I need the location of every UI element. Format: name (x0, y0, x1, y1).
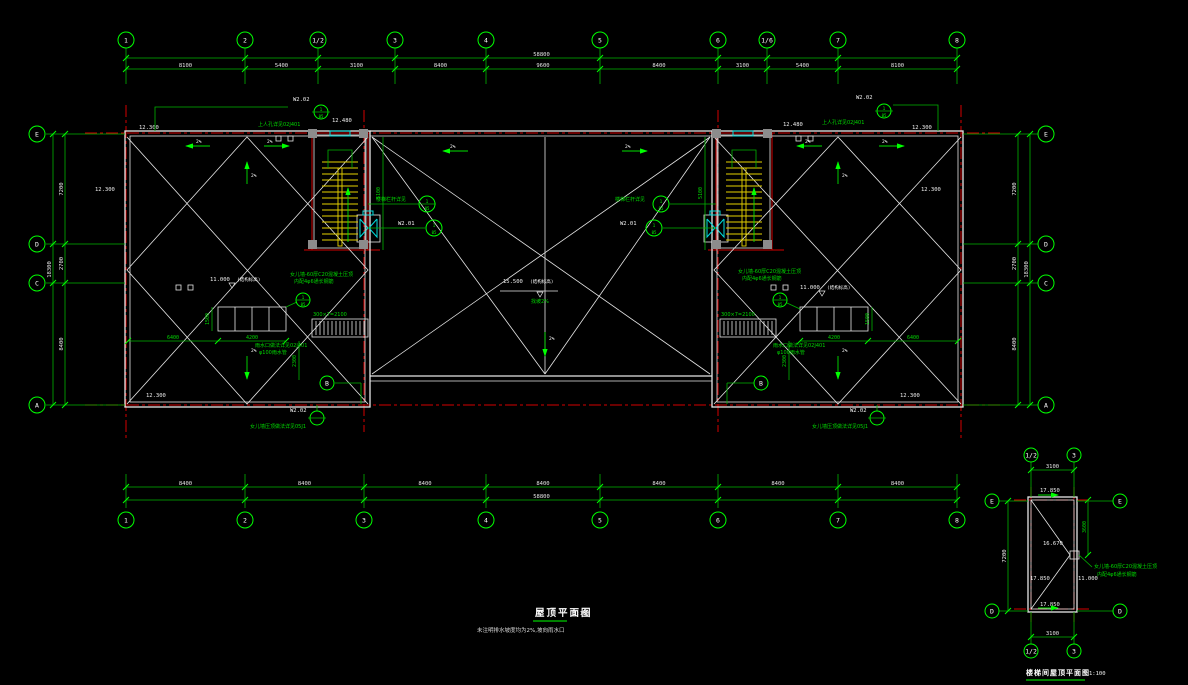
dimension-text: 18300 (1024, 261, 1030, 278)
dimension-text: 8400 (418, 481, 431, 487)
level-label: 12.300 (146, 393, 166, 399)
grid-bubble-label: 1/2 (1025, 647, 1037, 655)
level-label: 12.480 (332, 118, 352, 124)
level-label: 12.300 (921, 187, 941, 193)
slope-label: 2% (549, 336, 555, 342)
dimension-text: 8400 (652, 63, 665, 69)
detail-ref: W2.02 (290, 408, 307, 414)
detail-sheet: 05 (778, 302, 783, 307)
detail-number: 1 (883, 106, 886, 111)
grid-bubble-label: 3 (362, 516, 366, 524)
annotation-text: 上人孔详见02J401 (258, 121, 300, 128)
detail-number: 1 (302, 295, 305, 300)
dimension-text: 1500 (205, 313, 211, 325)
dimension-text: 8400 (298, 481, 311, 487)
grid-chain-top: 121/234561/67858800810054003100840096008… (118, 32, 965, 84)
title-block: 屋顶平面图 1:100 未注明排水坡度均为2%,坡向雨水口 (477, 608, 593, 634)
level-symbol-icon (819, 291, 825, 296)
grid-bubble-label: 1 (124, 36, 128, 44)
cad-viewport: 6400 4200 4200 6400 1500 1500 2300 2300 … (0, 0, 1188, 685)
grid-bubble-label: 6 (716, 516, 720, 524)
grid-chain-bottom: 1234567858800840084008400840084008400840… (118, 474, 965, 528)
grid-bubble-label: 5 (598, 36, 602, 44)
detail-sheet: 05 (432, 230, 437, 235)
slope-label: 2% (842, 348, 848, 354)
level-label: 11.000 (1078, 576, 1098, 582)
dimension-text: 8400 (771, 481, 784, 487)
dimension-text: 8400 (179, 481, 192, 487)
annotation-text: 雨水口做法详见02J401 (255, 342, 307, 349)
level-label: 12.480 (783, 122, 803, 128)
left-wing-ridges (127, 137, 368, 404)
grid-bubble-label: 7 (836, 36, 840, 44)
level-note: (结构标高) (530, 278, 553, 285)
grid-bubble-label: 3 (1072, 647, 1076, 655)
detail-ref: W2.02 (850, 408, 867, 414)
grid-bubble-label: D (1044, 240, 1048, 248)
slope-label: 2% (450, 144, 456, 150)
dimension-text: 2700 (59, 257, 65, 270)
annotation-text: 女儿墙-60厚C20混凝土压顶 (1094, 563, 1157, 570)
grid-bubble-label: 1/2 (1025, 451, 1037, 459)
dimension-text: 8400 (652, 481, 665, 487)
grid-bubble-label: 5 (598, 516, 602, 524)
annotations: W2.02 1 05 上人孔详见02J401 W2.02 1 05 上人孔详见0… (155, 95, 938, 430)
detail-sheet: 05 (882, 113, 887, 118)
detail-sheet: 05 (652, 230, 657, 235)
level-label: 12.300 (900, 393, 920, 399)
dimension-text: 5100 (698, 187, 704, 199)
detail-ref: W2.01 (620, 221, 637, 227)
level-symbol-icon (537, 292, 543, 297)
grid-bubble-label: B (325, 380, 329, 388)
dimension-text: 58800 (533, 494, 550, 500)
grid-bubble-label: 6 (716, 36, 720, 44)
skylight-left (218, 307, 286, 331)
level-label: 12.300 (139, 125, 159, 131)
level-note: (结构标高) (827, 284, 850, 291)
grid-chain-mini_left: ED7200 (985, 494, 1028, 618)
level-label: 17.850 (1040, 488, 1060, 494)
dimension-text: 7200 (1002, 549, 1008, 562)
grid-chain-mini_right: ED (1077, 494, 1127, 618)
dimension-text: 3100 (1046, 464, 1059, 470)
slope-note: 找坡2% (531, 298, 549, 305)
stair-roof-detail-plan: 17.850 16.670 17.850 11.000 17.850 女儿墙-6… (1026, 488, 1157, 680)
level-label: 11.000 (210, 277, 230, 283)
detail-sheet: 05 (319, 114, 324, 119)
red-wall-layer (85, 105, 1090, 622)
grid-bubble-label: 8 (955, 36, 959, 44)
annotation-text: 300×7=2100 (721, 312, 755, 318)
annotation-text: 内配4φ6通长钢筋 (1097, 571, 1137, 578)
dimension-text: 9600 (536, 63, 549, 69)
annotation-text: 内配4φ6通长钢筋 (742, 275, 782, 282)
dimension-text: 5400 (275, 63, 288, 69)
stair-right (712, 129, 772, 249)
grid-bubble-label: 2 (243, 516, 247, 524)
slope-label: 2% (267, 139, 273, 145)
slope-label: 2% (196, 139, 202, 145)
annotation-text: φ100雨水管 (777, 349, 805, 356)
annotation-text: 女儿墙-60厚C20混凝土压顶 (738, 268, 801, 275)
grid-bubble-label: 3 (1072, 451, 1076, 459)
level-label: 15.500 (503, 279, 523, 285)
slope-label: 2% (842, 173, 848, 179)
dimension-text: 4200 (246, 335, 258, 341)
dimension-text: 8400 (59, 337, 65, 350)
grid-bubble-label: 2 (243, 36, 247, 44)
dimension-text: 3100 (1046, 631, 1059, 637)
level-label: 12.300 (95, 187, 115, 193)
roof-drains (176, 136, 813, 290)
annotation-text: 300×7=2100 (313, 312, 347, 318)
detail-plan-title: 楼梯间屋顶平面图 (1026, 668, 1090, 677)
dimension-text: 2300 (782, 355, 788, 367)
slope-label: 2% (625, 144, 631, 150)
dimension-text: 7200 (59, 182, 65, 195)
level-label: 17.850 (1040, 602, 1060, 608)
elevation-labels: 12.300 12.300 12.300 12.300 12.300 12.30… (95, 118, 941, 399)
detail-number: 1 (779, 295, 782, 300)
detail-sheet: 05 (659, 206, 664, 211)
detail-number: 1 (660, 199, 663, 204)
detail-ref: W2.02 (856, 95, 873, 101)
detail-sheet: 05 (425, 206, 430, 211)
annotation-text: 楼梯栏杆详见 (376, 196, 406, 203)
annotation-text: 女儿墙压顶做法详见05J1 (812, 423, 868, 430)
grid-bubble-label: C (35, 279, 39, 287)
grid-bubble-label: 1/6 (761, 36, 773, 44)
drawing-scale: 1:100 (573, 611, 590, 617)
annotation-text: 女儿墙压顶做法详见05J1 (250, 423, 306, 430)
dimension-text: 8400 (1012, 337, 1018, 350)
detail-sheet: 05 (301, 302, 306, 307)
grid-bubble-label: A (35, 401, 39, 409)
grid-bubble-label: A (1044, 401, 1048, 409)
grid-bubble-label: D (1118, 607, 1122, 615)
grid-bubble-label: E (1044, 130, 1048, 138)
grid-bubble-label: D (990, 607, 994, 615)
annotation-text: 楼梯栏杆详见 (615, 196, 645, 203)
detail-number: 1 (320, 107, 323, 112)
annotation-text: 内配4φ6通长钢筋 (294, 278, 334, 285)
annotation-text: 女儿墙-60厚C20混凝土压顶 (290, 271, 353, 278)
drawing-note: 未注明排水坡度均为2%,坡向雨水口 (477, 626, 564, 634)
slope-label: 2% (882, 139, 888, 145)
grid-bubble-label: B (759, 380, 763, 388)
grid-bubble-label: 4 (484, 36, 488, 44)
dimension-text: 18300 (47, 261, 53, 278)
detail-number: 1 (653, 223, 656, 228)
cad-canvas: 6400 4200 4200 6400 1500 1500 2300 2300 … (0, 0, 1188, 685)
detail-plan-scale: 1:100 (1089, 671, 1106, 677)
dimension-text: 6400 (167, 335, 179, 341)
dimension-text: 7200 (1012, 182, 1018, 195)
dimension-text: 4200 (828, 335, 840, 341)
grid-bubble-label: 8 (955, 516, 959, 524)
center-roof-ridges (372, 137, 710, 374)
dimension-text: 1500 (865, 313, 871, 325)
grid-bubble-label: 4 (484, 516, 488, 524)
level-label: 12.300 (912, 125, 932, 131)
grid-bubble-label: D (35, 240, 39, 248)
dimension-text: 58800 (533, 52, 550, 58)
dimension-text: 3100 (736, 63, 749, 69)
dimension-text: 8100 (891, 63, 904, 69)
level-label: 16.670 (1043, 541, 1063, 547)
detail-number: 1 (426, 199, 429, 204)
slope-label: 2% (805, 139, 811, 145)
slope-label: 2% (251, 173, 257, 179)
dimension-text: 8400 (891, 481, 904, 487)
grid-chain-mini_bottom: 1/233100 (1024, 612, 1081, 658)
grid-bubble-label: E (35, 130, 39, 138)
skylight-right (800, 307, 868, 331)
grid-bubble-label: 7 (836, 516, 840, 524)
grid-bubble-label: E (1118, 497, 1122, 505)
grid-bubble-label: 3 (393, 36, 397, 44)
grid-bubble-label: E (990, 497, 994, 505)
grid-chain-right: EDCA18300720027008400 (963, 126, 1054, 413)
annotation-text: 雨水口做法详见02J401 (773, 342, 825, 349)
dimension-text: 8400 (434, 63, 447, 69)
roof-outline-layer (125, 131, 963, 407)
detail-ref: W2.02 (293, 97, 310, 103)
level-note: (结构标高) (237, 276, 260, 283)
level-label: 11.000 (800, 285, 820, 291)
detail-ref: W2.01 (398, 221, 415, 227)
dimension-text: 8100 (179, 63, 192, 69)
grid-bubble-label: C (1044, 279, 1048, 287)
annotation-text: 上人孔详见02J401 (822, 119, 864, 126)
dimension-text: 3600 (1082, 521, 1088, 533)
grid-bubble-label: 1/2 (312, 36, 324, 44)
grid-bubble-label: 1 (124, 516, 128, 524)
annotation-text: φ100雨水管 (259, 349, 287, 356)
level-label: 17.850 (1030, 576, 1050, 582)
dimension-text: 2300 (292, 355, 298, 367)
dimension-text: 3100 (350, 63, 363, 69)
dimension-text: 6400 (907, 335, 919, 341)
dimension-text: 8400 (536, 481, 549, 487)
grid-chain-left: EDCA18300720027008400 (29, 126, 125, 413)
dimension-text: 5400 (796, 63, 809, 69)
dimension-text: 2700 (1012, 257, 1018, 270)
